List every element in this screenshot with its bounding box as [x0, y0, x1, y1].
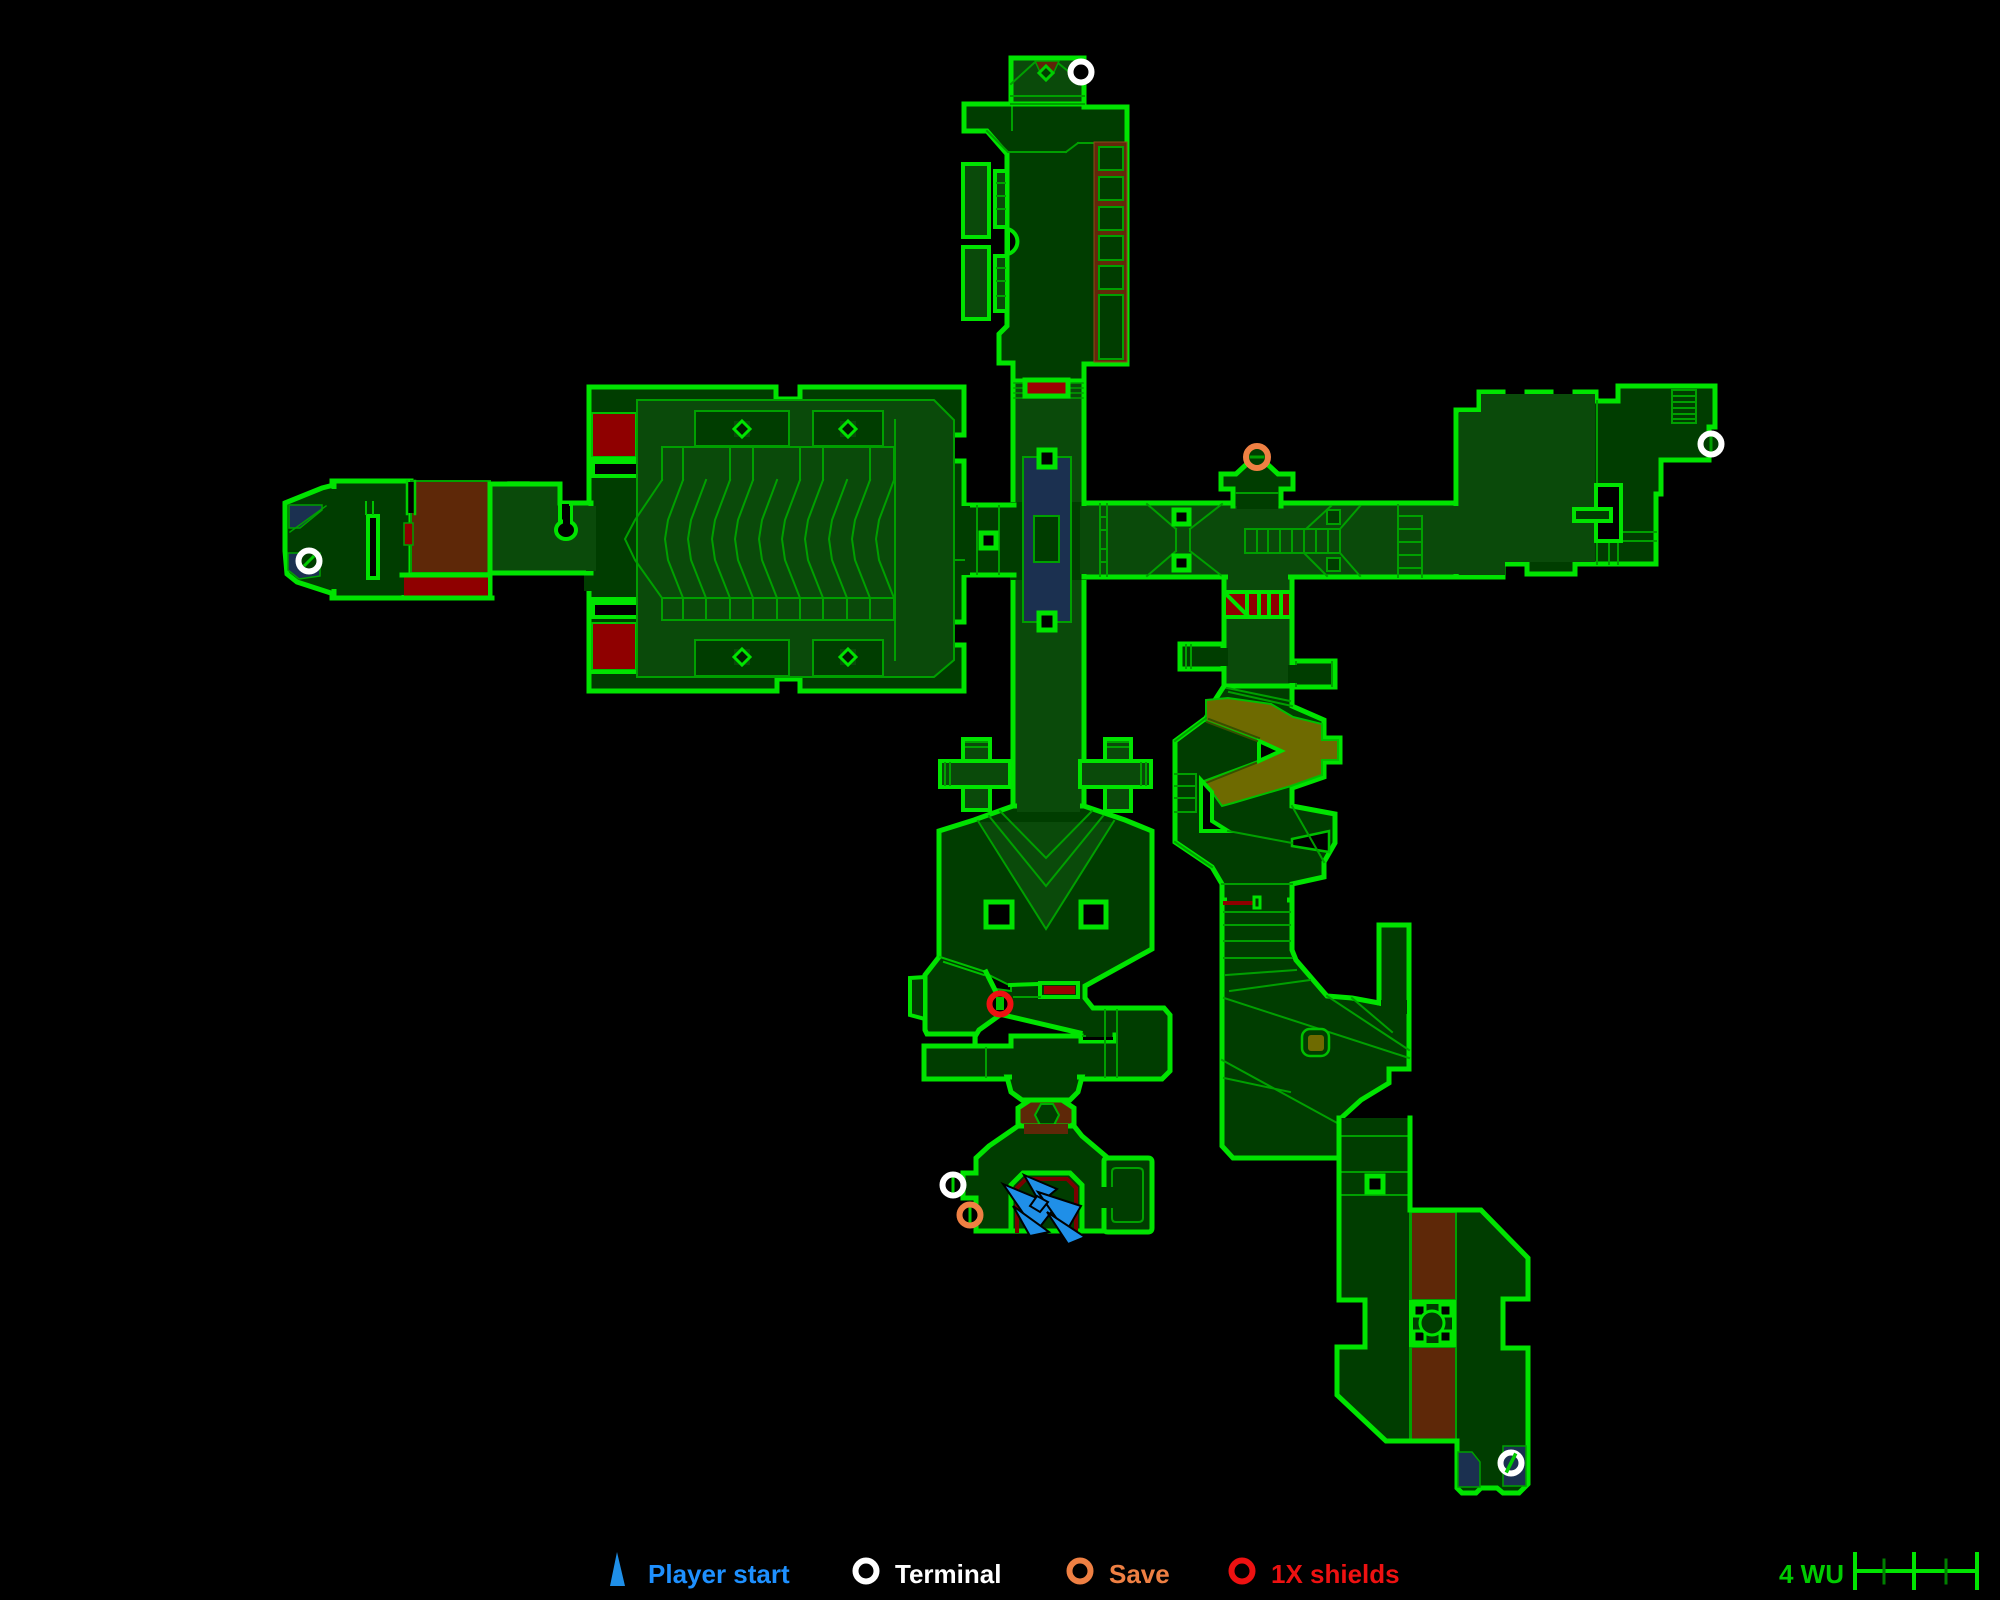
svg-text:Save: Save [1109, 1559, 1170, 1589]
svg-text:Player start: Player start [648, 1559, 790, 1589]
svg-text:4 WU: 4 WU [1779, 1559, 1844, 1589]
svg-text:1X shields: 1X shields [1271, 1559, 1400, 1589]
svg-text:Terminal: Terminal [895, 1559, 1001, 1589]
